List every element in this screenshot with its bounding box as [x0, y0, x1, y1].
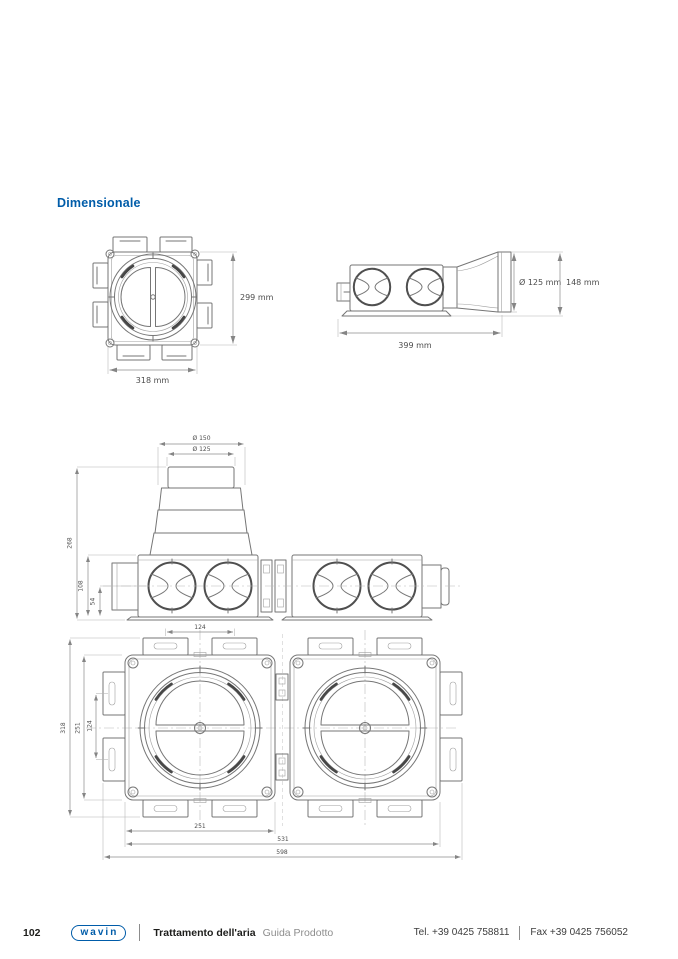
fax-number: Fax +39 0425 756052: [530, 927, 628, 938]
dim-total-height-label: 268: [67, 537, 74, 549]
dim-overall-depth-label: 318: [60, 722, 67, 734]
catalog-page: Dimensionale: [0, 0, 678, 959]
dim-axis-height-label: 54: [90, 598, 97, 606]
duct-opening: [109, 253, 197, 341]
dimension-lines: Ø 125 mm 148 mm 399 mm: [338, 252, 600, 350]
doc-title: Trattamento dell'aria: [153, 927, 255, 939]
dim-length-label: 399 mm: [398, 341, 432, 350]
wavin-logo: wavin: [71, 925, 127, 941]
assembly-top-view-drawing: 124 318 251 124 251 531 598: [28, 618, 473, 885]
right-box-top-view: [290, 638, 462, 817]
dim-width-label: 318 mm: [136, 376, 170, 385]
dim-overall-width-label: 598: [276, 849, 288, 856]
dim-height-label: 148 mm: [566, 278, 600, 287]
footer: 102 wavin Trattamento dell'aria Guida Pr…: [0, 924, 678, 941]
phone-number: Tel. +39 0425 758811: [414, 927, 510, 938]
page-title: Dimensionale: [57, 196, 141, 210]
dim-port-spacing-side-label: 124: [87, 720, 94, 732]
side-view-drawing: Ø 125 mm 148 mm 399 mm: [330, 242, 615, 357]
unit-side-outline: [337, 252, 511, 316]
left-unit-side: [112, 555, 273, 620]
front-view-drawing: 299 mm 318 mm: [70, 230, 280, 388]
dim-body-depth-label: 251: [75, 722, 82, 734]
contact-divider: [519, 926, 520, 940]
left-box-top-view: [103, 638, 275, 817]
dim-height-label: 299 mm: [240, 293, 274, 302]
coupling: [276, 674, 288, 780]
dim-double-width-label: 531: [277, 836, 289, 843]
dim-diameter-label: Ø 125 mm: [519, 277, 561, 287]
dim-inner-diameter-label: Ø 125: [192, 446, 210, 453]
right-unit-side: [282, 555, 449, 620]
footer-contacts: Tel. +39 0425 758811 Fax +39 0425 756052: [414, 926, 628, 940]
page-number: 102: [23, 927, 41, 939]
dim-outer-diameter-label: Ø 150: [192, 435, 210, 442]
footer-divider: [139, 924, 140, 941]
dim-body-height-label: 108: [78, 580, 85, 592]
dim-body-width-label: 251: [194, 823, 206, 830]
assembly-side-view-drawing: Ø 150 Ø 125 268 108 54: [55, 423, 475, 623]
duct-ports: [354, 269, 443, 305]
doc-subtitle: Guida Prodotto: [263, 927, 334, 939]
dim-port-spacing-top-label: 124: [194, 624, 206, 631]
dimension-lines: 124 318 251 124 251 531 598: [60, 624, 462, 860]
reducer-cone: [150, 467, 252, 555]
